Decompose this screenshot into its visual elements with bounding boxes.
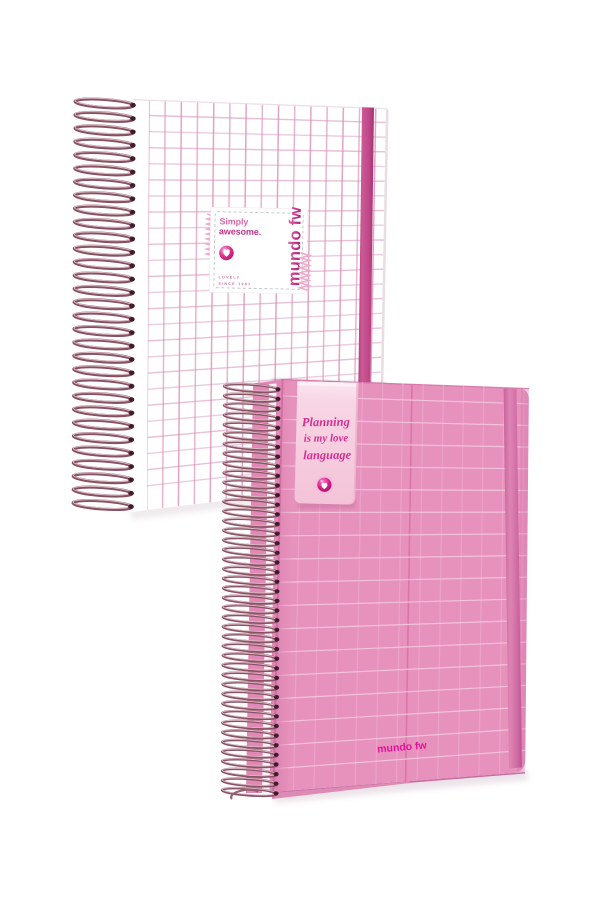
svg-text:is my love: is my love — [304, 432, 349, 444]
svg-text:SINCE 1987: SINCE 1987 — [218, 282, 251, 287]
svg-text:Planning: Planning — [302, 415, 350, 430]
svg-text:language: language — [303, 448, 352, 463]
svg-text:Simply: Simply — [219, 216, 248, 227]
svg-text:awesome.: awesome. — [219, 226, 261, 237]
svg-text:mundo fw: mundo fw — [285, 207, 305, 287]
svg-text:LOVELY: LOVELY — [218, 275, 240, 279]
